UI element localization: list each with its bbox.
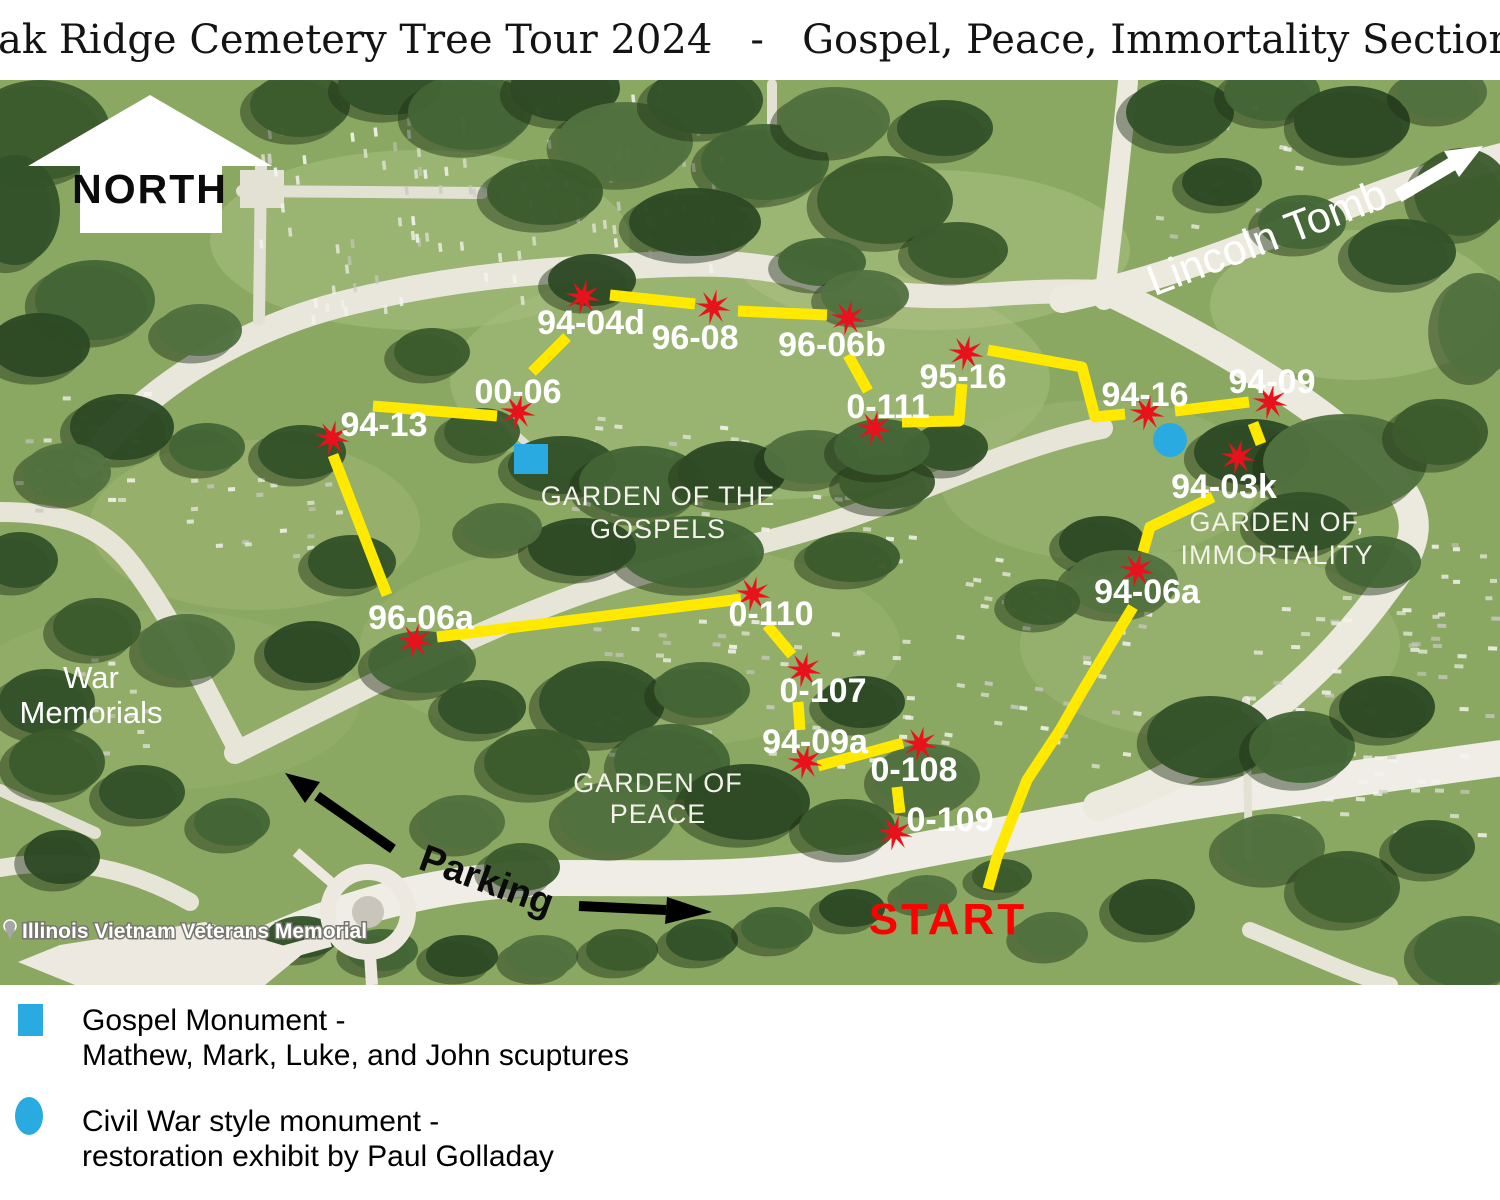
- legend-gospel-line1: Gospel Monument -: [82, 1003, 629, 1038]
- gospel-monument-swatch: [18, 1004, 43, 1036]
- title-bar: Oak Ridge Cemetery Tree Tour 2024 - Gosp…: [0, 0, 1500, 80]
- route-segment-16: [897, 787, 900, 813]
- tree-stop-label-96-08: 96-08: [652, 319, 739, 357]
- tree-stop-label-0-109: 0-109: [907, 801, 994, 839]
- garden-of-immortality-label-line1: GARDEN OF,: [1189, 507, 1364, 537]
- garden-of-the-gospels-label-line1: GARDEN OF THE: [541, 481, 776, 511]
- tree-stop-label-94-03k: 94-03k: [1171, 468, 1277, 506]
- vietnam-memorial-label: Illinois Vietnam Veterans Memorial: [22, 920, 367, 943]
- tree-stop-label-0-110: 0-110: [728, 595, 813, 633]
- garden-of-peace-label-line1: GARDEN OF: [573, 768, 743, 798]
- north-label: NORTH: [72, 166, 228, 212]
- war-memorials-label-line1: War: [63, 660, 119, 695]
- tree-stop-label-0-108: 0-108: [871, 751, 958, 789]
- route-segment-5: [738, 311, 827, 315]
- tree-stop-label-94-06a: 94-06a: [1094, 573, 1201, 611]
- tree-stop-label-0-107: 0-107: [780, 672, 867, 710]
- tree-stop-label-94-09a: 94-09a: [762, 723, 869, 761]
- war-memorial-path3: [370, 955, 372, 985]
- garden-of-immortality-label-line2: IMMORTALITY: [1180, 540, 1373, 570]
- tree-stop-label-94-09: 94-09: [1229, 363, 1316, 401]
- civil-war-monument-marker: [1153, 423, 1187, 457]
- page-title: Oak Ridge Cemetery Tree Tour 2024 - Gosp…: [0, 17, 1500, 63]
- tree-stop-label-94-13: 94-13: [341, 406, 428, 444]
- legend: Gospel Monument - Mathew, Mark, Luke, an…: [0, 985, 1500, 1200]
- garden-of-the-gospels-label-line2: GOSPELS: [590, 514, 726, 544]
- tree-stop-label-00-06: 00-06: [475, 373, 562, 411]
- war-memorials-label-line2: Memorials: [20, 695, 163, 730]
- legend-gospel-line2: Mathew, Mark, Luke, and John scuptures: [82, 1038, 629, 1073]
- legend-civilwar-line1: Civil War style monument -: [82, 1104, 554, 1139]
- cemetery-map: GARDEN OF THEGOSPELSGARDEN OFPEACEGARDEN…: [0, 80, 1500, 985]
- gospel-monument-marker: [514, 444, 548, 474]
- legend-civilwar-line2: restoration exhibit by Paul Golladay: [82, 1139, 554, 1174]
- route-segment-10: [1253, 423, 1261, 444]
- civil-war-monument-swatch: [15, 1097, 43, 1135]
- tree-stop-label-95-16: 95-16: [920, 358, 1007, 396]
- tree-stop-label-0-111: 0-111: [846, 388, 929, 426]
- tree-stop-label-94-16: 94-16: [1102, 376, 1189, 414]
- tree-stop-label-96-06a: 96-06a: [368, 599, 475, 637]
- tree-stop-label-94-04d: 94-04d: [537, 304, 645, 342]
- tree-stop-label-96-06b: 96-06b: [778, 326, 886, 364]
- start-label: START: [869, 895, 1027, 944]
- parking-arrow-right-shaft: [579, 906, 666, 910]
- garden-of-peace-label-line2: PEACE: [610, 799, 707, 829]
